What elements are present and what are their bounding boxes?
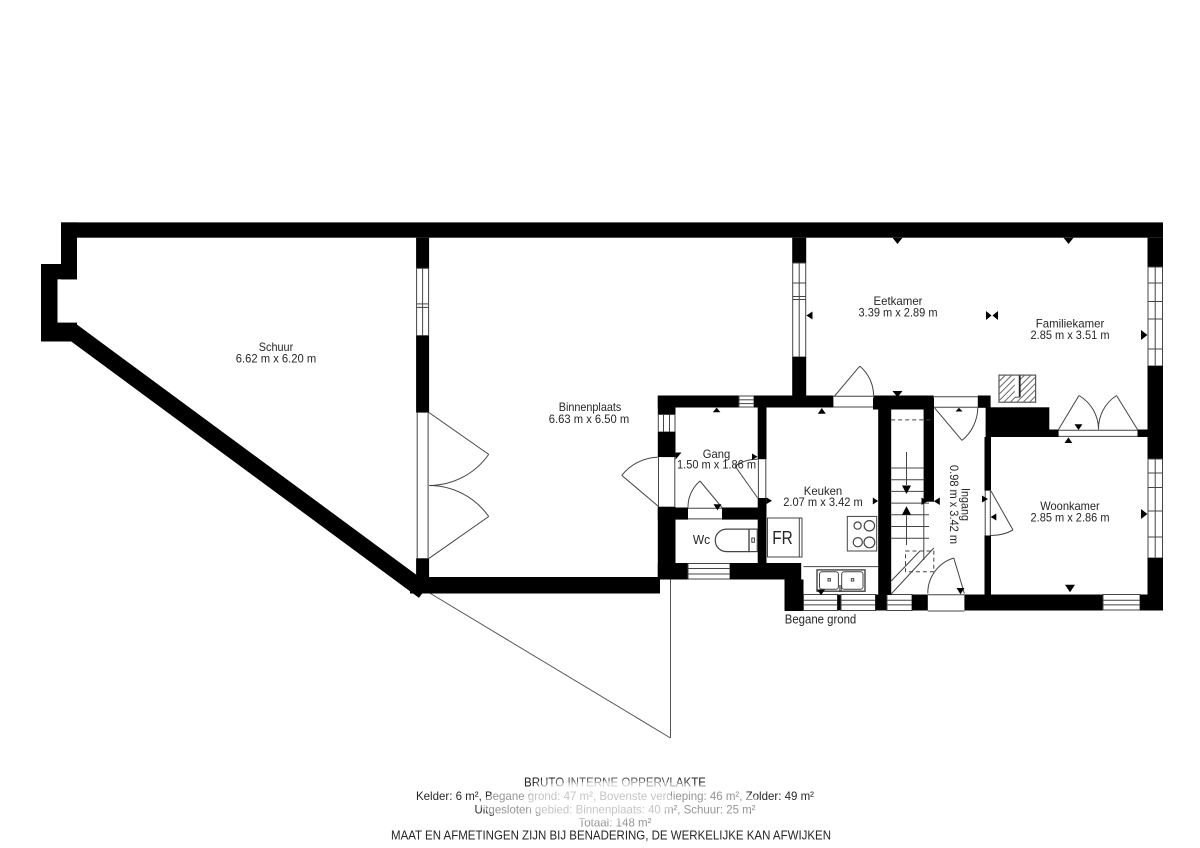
svg-text:6.63 m x 6.50 m: 6.63 m x 6.50 m (549, 412, 630, 426)
svg-text:FR: FR (772, 527, 793, 548)
svg-text:MAAT EN AFMETINGEN ZIJN BIJ BE: MAAT EN AFMETINGEN ZIJN BIJ BENADERING, … (391, 829, 831, 843)
svg-text:2.85 m x 2.86 m: 2.85 m x 2.86 m (1031, 511, 1110, 525)
svg-text:2.07 m x 3.42 m: 2.07 m x 3.42 m (783, 495, 863, 509)
svg-text:Begane grond: Begane grond (785, 612, 857, 626)
svg-text:6.62 m x 6.20 m: 6.62 m x 6.20 m (236, 352, 317, 366)
svg-text:3.39 m x 2.89 m: 3.39 m x 2.89 m (859, 306, 938, 320)
svg-text:0.98 m x 3.42 m: 0.98 m x 3.42 m (947, 465, 961, 544)
svg-text:2.85 m x 3.51 m: 2.85 m x 3.51 m (1031, 328, 1110, 342)
svg-text:Wc: Wc (693, 533, 710, 547)
svg-text:1.50 m x 1.86 m: 1.50 m x 1.86 m (677, 458, 756, 472)
